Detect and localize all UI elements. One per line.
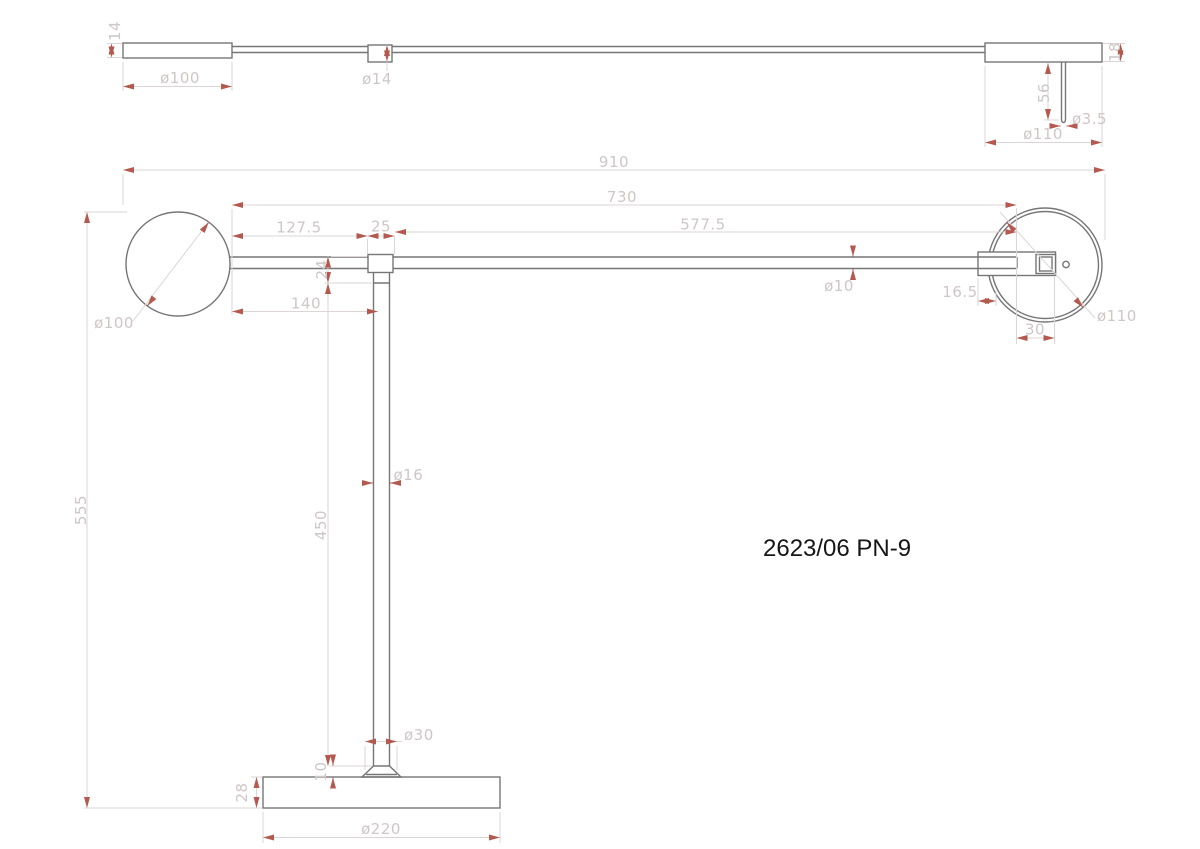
dimension-labels: 14 ø100 ø14 18 56 ø3.5 ø110 910 730 577.… — [72, 21, 1137, 838]
dim-stem-diameter: ø3.5 — [1072, 110, 1107, 128]
shade-leader-arrow-top — [204, 222, 209, 229]
dim-head-mount-width: 30 — [1025, 321, 1045, 339]
top-joint — [368, 45, 392, 62]
top-stem — [1062, 62, 1066, 123]
dim-shade-thickness: 14 — [106, 21, 124, 41]
dim-base-diameter: ø220 — [361, 820, 401, 838]
dim-head-inset: 16.5 — [942, 283, 977, 301]
dim-overall-height: 555 — [72, 495, 90, 525]
dim-top-head-diameter: ø110 — [1023, 125, 1063, 143]
pole — [374, 273, 390, 767]
dim-foot-height: 10 — [312, 761, 330, 781]
dim-shade-to-pole: 140 — [291, 295, 321, 313]
dim-top-shade-diameter: ø100 — [160, 69, 200, 87]
dim-stem-length: 56 — [1035, 83, 1053, 103]
shade-leader-arrow-bottom — [147, 299, 153, 306]
base — [263, 777, 500, 808]
arm-line — [230, 257, 978, 269]
dim-base-thickness: 28 — [233, 782, 251, 802]
dim-pole-diameter: ø16 — [394, 466, 424, 484]
shade-circle — [126, 212, 230, 316]
drawing-page: 14 ø100 ø14 18 56 ø3.5 ø110 910 730 577.… — [0, 0, 1200, 849]
dim-arm-length: 730 — [607, 188, 637, 206]
arm-joint — [368, 255, 393, 273]
top-arm-line — [232, 47, 985, 53]
dim-arm-diameter: ø10 — [824, 277, 854, 295]
dim-pole-length: 450 — [312, 510, 330, 540]
top-shade — [123, 43, 232, 58]
technical-drawing: 14 ø100 ø14 18 56 ø3.5 ø110 910 730 577.… — [0, 0, 1200, 849]
product-code-label: 2623/06 PN-9 — [763, 535, 911, 562]
dim-joint-height: 24 — [313, 259, 331, 279]
top-view — [123, 43, 1102, 123]
shade-diameter-leader — [133, 222, 209, 321]
dim-joint-diameter: ø14 — [362, 70, 392, 88]
dim-foot-diameter: ø30 — [404, 726, 434, 744]
dim-overall-width: 910 — [599, 153, 629, 171]
head-pivot-hole — [1063, 261, 1069, 267]
dim-head-thickness: 18 — [1106, 42, 1124, 62]
dim-front-shade-diameter: ø100 — [94, 314, 134, 332]
dim-front-head-diameter: ø110 — [1097, 307, 1137, 325]
dim-joint-width: 25 — [371, 218, 391, 236]
top-head — [985, 43, 1102, 62]
pole-foot — [362, 766, 401, 777]
dim-arm-left-span: 127.5 — [276, 219, 321, 237]
dim-arm-right-span: 577.5 — [680, 216, 725, 234]
